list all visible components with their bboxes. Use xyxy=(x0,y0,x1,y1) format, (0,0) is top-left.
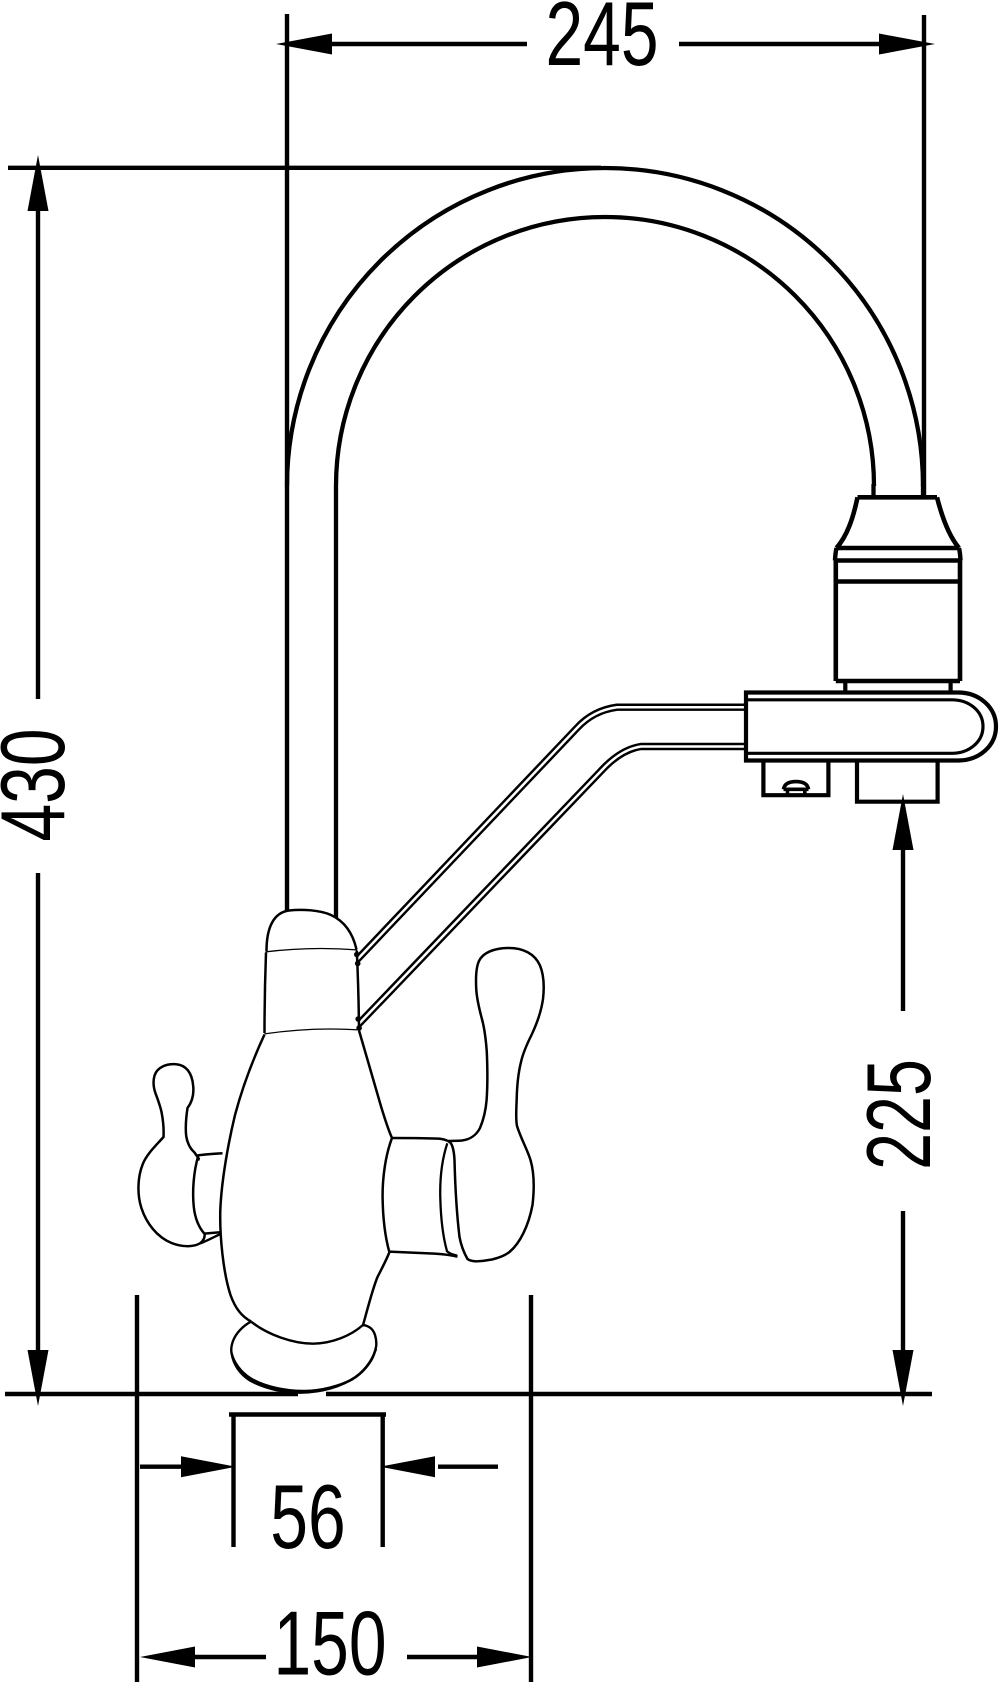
svg-text:430: 430 xyxy=(0,728,84,841)
svg-text:56: 56 xyxy=(270,1466,345,1568)
svg-text:225: 225 xyxy=(848,1059,950,1170)
svg-text:150: 150 xyxy=(273,1593,386,1682)
svg-text:245: 245 xyxy=(545,0,658,85)
